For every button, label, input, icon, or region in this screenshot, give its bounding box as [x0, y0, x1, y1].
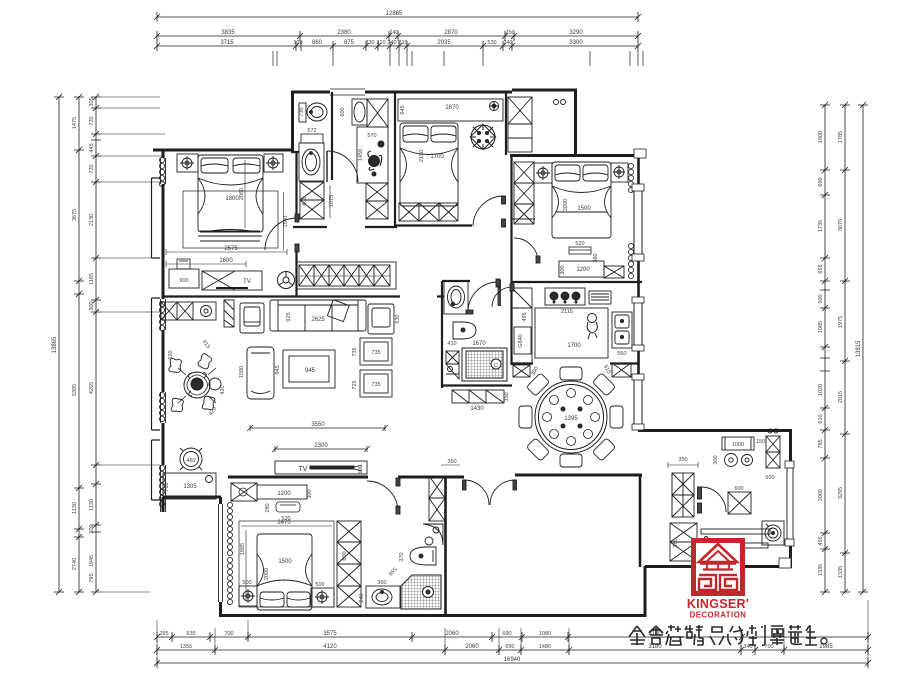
svg-text:2870: 2870 — [445, 105, 459, 111]
svg-text:3675: 3675 — [72, 209, 78, 221]
svg-text:240: 240 — [503, 40, 512, 46]
svg-text:600: 600 — [302, 196, 308, 205]
svg-text:1335: 1335 — [838, 566, 844, 578]
svg-text:1075: 1075 — [329, 195, 335, 207]
svg-text:630: 630 — [395, 314, 401, 323]
svg-text:735: 735 — [371, 382, 380, 388]
svg-text:3575: 3575 — [323, 631, 337, 637]
svg-text:2000: 2000 — [563, 199, 569, 211]
svg-text:960: 960 — [377, 580, 386, 586]
svg-text:560: 560 — [617, 351, 626, 357]
svg-text:265: 265 — [159, 631, 168, 637]
svg-text:610: 610 — [818, 414, 824, 423]
svg-text:1185: 1185 — [89, 273, 95, 285]
svg-text:2870: 2870 — [444, 30, 458, 36]
svg-text:1975: 1975 — [838, 316, 844, 328]
svg-text:520: 520 — [575, 241, 584, 247]
svg-text:240: 240 — [387, 40, 396, 46]
svg-text:1600: 1600 — [219, 258, 233, 264]
svg-text:420: 420 — [220, 385, 226, 394]
svg-text:1395: 1395 — [564, 416, 578, 422]
svg-text:500: 500 — [315, 582, 324, 588]
svg-text:460: 460 — [186, 458, 195, 464]
svg-text:240: 240 — [359, 593, 365, 602]
svg-text:860: 860 — [312, 40, 323, 46]
svg-text:1800: 1800 — [818, 131, 824, 143]
svg-text:1130: 1130 — [72, 502, 78, 514]
svg-text:3295: 3295 — [838, 487, 844, 499]
svg-text:945: 945 — [275, 365, 281, 374]
svg-text:1800: 1800 — [225, 196, 239, 202]
svg-text:350: 350 — [504, 392, 510, 401]
svg-text:2060: 2060 — [818, 489, 824, 501]
svg-text:1080: 1080 — [539, 631, 551, 637]
svg-text:305: 305 — [89, 97, 95, 106]
svg-text:1785: 1785 — [838, 131, 844, 143]
svg-text:280: 280 — [265, 503, 271, 512]
svg-text:520: 520 — [168, 350, 174, 359]
svg-text:250: 250 — [505, 30, 514, 36]
svg-text:300: 300 — [89, 301, 95, 310]
svg-text:2470: 2470 — [277, 520, 291, 526]
svg-text:935: 935 — [186, 631, 195, 637]
svg-text:13865: 13865 — [52, 336, 58, 353]
svg-text:2035: 2035 — [437, 40, 451, 46]
svg-text:TV: TV — [243, 279, 251, 285]
svg-text:795: 795 — [89, 573, 95, 582]
svg-text:530: 530 — [487, 40, 496, 46]
svg-text:1700: 1700 — [567, 343, 581, 349]
svg-text:690: 690 — [502, 631, 511, 637]
svg-text:1885: 1885 — [240, 543, 246, 555]
svg-text:300: 300 — [713, 455, 719, 464]
svg-text:1945: 1945 — [89, 555, 95, 567]
svg-text:1580: 1580 — [239, 366, 245, 378]
svg-text:600: 600 — [765, 475, 774, 481]
svg-text:2115: 2115 — [561, 309, 573, 315]
svg-text:300: 300 — [560, 265, 566, 274]
svg-text:572: 572 — [307, 128, 316, 134]
svg-text:1130: 1130 — [89, 499, 95, 511]
svg-text:1305: 1305 — [183, 484, 197, 490]
svg-text:3300: 3300 — [569, 40, 583, 46]
svg-text:380: 380 — [673, 538, 679, 547]
svg-text:3180: 3180 — [648, 644, 662, 650]
svg-text:KINGSER': KINGSER' — [687, 597, 749, 611]
svg-text:600: 600 — [734, 486, 743, 492]
svg-text:2130: 2130 — [89, 214, 95, 226]
svg-text:455: 455 — [818, 536, 824, 545]
svg-text:1700: 1700 — [430, 154, 444, 160]
svg-text:330: 330 — [365, 40, 374, 46]
svg-text:700: 700 — [764, 644, 773, 650]
svg-text:370: 370 — [399, 552, 405, 561]
svg-text:150: 150 — [756, 439, 765, 445]
svg-text:690: 690 — [818, 177, 824, 186]
svg-text:1500: 1500 — [278, 559, 292, 565]
svg-text:3715: 3715 — [220, 40, 234, 46]
svg-text:200: 200 — [89, 524, 95, 533]
svg-text:120: 120 — [293, 40, 302, 46]
svg-text:2000: 2000 — [264, 568, 270, 580]
svg-text:DECORATION: DECORATION — [690, 611, 747, 620]
svg-text:210: 210 — [398, 40, 407, 46]
svg-text:C: C — [494, 363, 498, 369]
svg-text:785: 785 — [818, 439, 824, 448]
svg-text:730: 730 — [299, 107, 305, 116]
svg-text:720: 720 — [89, 116, 95, 125]
svg-text:500: 500 — [242, 580, 251, 586]
svg-text:3070: 3070 — [838, 219, 844, 231]
svg-text:2985: 2985 — [819, 644, 833, 650]
svg-text:1450: 1450 — [358, 149, 364, 161]
svg-text:TV: TV — [299, 466, 308, 473]
svg-text:12865: 12865 — [386, 11, 403, 17]
svg-text:2740: 2740 — [72, 558, 78, 570]
svg-text:2060: 2060 — [239, 188, 245, 200]
svg-text:2150: 2150 — [419, 150, 425, 162]
svg-text:1200: 1200 — [576, 267, 590, 273]
svg-text:3290: 3290 — [569, 30, 583, 36]
svg-text:1670: 1670 — [472, 341, 486, 347]
svg-text:1475: 1475 — [72, 117, 78, 129]
svg-text:1085: 1085 — [818, 321, 824, 333]
svg-text:2060: 2060 — [445, 631, 459, 637]
svg-text:600: 600 — [340, 107, 346, 116]
svg-text:3835: 3835 — [221, 30, 235, 36]
svg-text:1200: 1200 — [277, 491, 291, 497]
svg-text:720: 720 — [89, 164, 95, 173]
svg-text:3550: 3550 — [311, 422, 325, 428]
svg-text:655: 655 — [818, 264, 824, 273]
svg-text:925: 925 — [286, 312, 292, 321]
svg-text:500: 500 — [818, 294, 824, 303]
svg-text:1335: 1335 — [818, 564, 824, 576]
svg-text:600: 600 — [358, 465, 364, 474]
svg-text:495: 495 — [522, 312, 528, 321]
svg-text:735: 735 — [352, 347, 358, 356]
svg-text:5395: 5395 — [72, 384, 78, 396]
svg-text:350: 350 — [447, 459, 456, 465]
svg-text:2060: 2060 — [465, 644, 479, 650]
svg-text:2015: 2015 — [838, 391, 844, 403]
svg-text:4265: 4265 — [89, 382, 95, 394]
svg-text:360: 360 — [593, 253, 599, 262]
svg-text:310: 310 — [376, 40, 385, 46]
svg-text:875: 875 — [344, 40, 355, 46]
svg-text:2625: 2625 — [311, 317, 325, 323]
svg-text:240: 240 — [389, 30, 398, 36]
svg-text:445: 445 — [89, 143, 95, 152]
svg-text:1000: 1000 — [732, 442, 744, 448]
svg-text:1500: 1500 — [577, 206, 591, 212]
svg-text:13815: 13815 — [856, 340, 862, 357]
svg-text:725: 725 — [352, 380, 358, 389]
svg-text:410: 410 — [447, 341, 456, 347]
svg-text:4120: 4120 — [323, 644, 337, 650]
svg-text:1735: 1735 — [818, 220, 824, 232]
svg-text:16940: 16940 — [504, 657, 521, 663]
svg-text:2300: 2300 — [314, 443, 328, 449]
svg-text:700: 700 — [224, 631, 233, 637]
svg-text:2380: 2380 — [337, 30, 351, 36]
svg-text:900: 900 — [179, 278, 188, 284]
svg-text:945: 945 — [305, 368, 316, 374]
svg-text:690: 690 — [505, 644, 514, 650]
svg-text:350: 350 — [678, 457, 687, 463]
svg-text:300: 300 — [307, 489, 313, 498]
svg-text:1480: 1480 — [539, 644, 551, 650]
svg-text:645: 645 — [400, 105, 406, 114]
svg-text:1020: 1020 — [818, 384, 824, 396]
svg-text:735: 735 — [371, 350, 380, 356]
svg-text:760: 760 — [164, 482, 170, 491]
svg-text:570: 570 — [367, 133, 376, 139]
svg-text:1430: 1430 — [470, 406, 484, 412]
svg-text:2575: 2575 — [224, 246, 238, 252]
svg-text:1355: 1355 — [180, 644, 192, 650]
svg-text:600: 600 — [342, 551, 348, 560]
svg-text:G840: G840 — [518, 334, 524, 347]
